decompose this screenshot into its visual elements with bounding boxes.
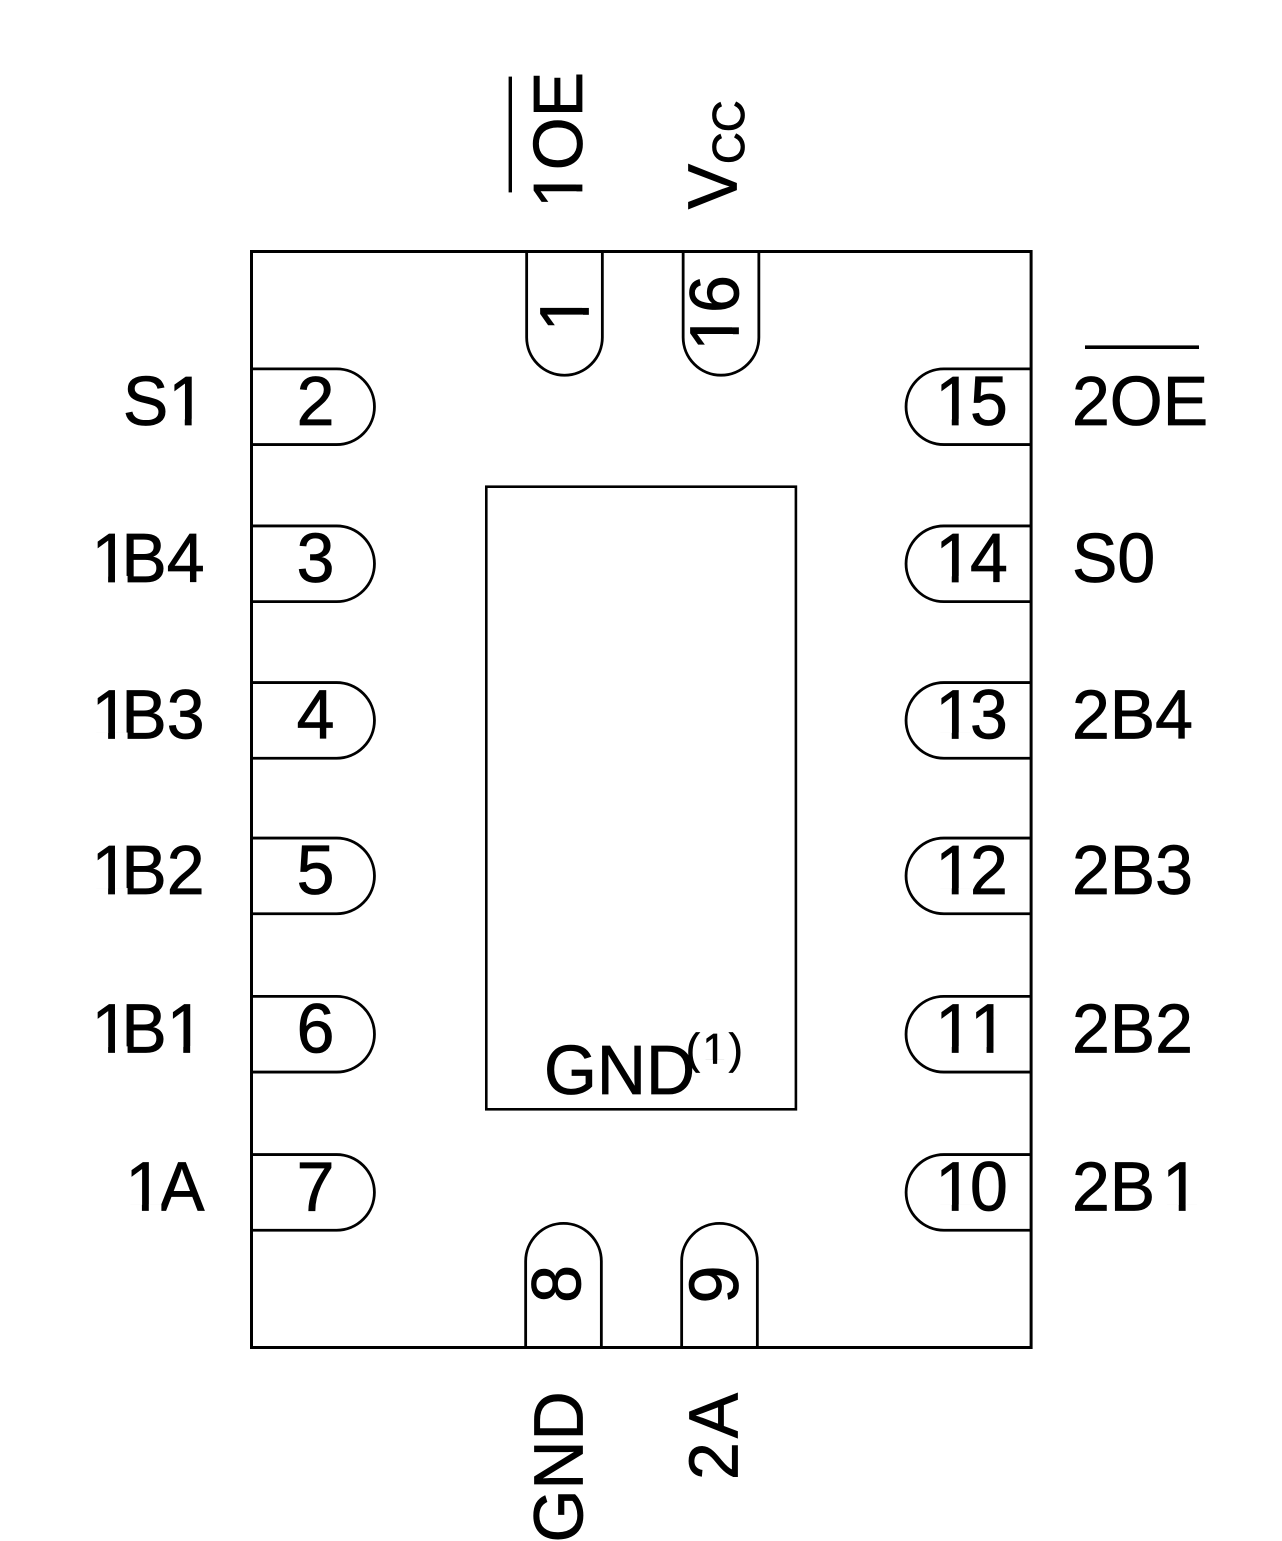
svg-text:2B3: 2B3 [1072, 831, 1193, 909]
svg-text:13: 13 [935, 676, 1008, 754]
svg-text:2: 2 [297, 362, 335, 440]
svg-text:11: 11 [935, 990, 1008, 1068]
svg-text:2A: 2A [675, 1393, 753, 1480]
svg-text:S1: S1 [123, 362, 206, 440]
svg-text:1B4: 1B4 [92, 519, 205, 597]
svg-text:9: 9 [675, 1266, 753, 1304]
svg-text:8: 8 [518, 1265, 596, 1303]
svg-text:GND: GND [544, 1031, 695, 1109]
svg-text:S0: S0 [1072, 519, 1155, 597]
svg-text:6: 6 [297, 990, 335, 1068]
svg-text:15: 15 [935, 362, 1008, 440]
svg-text:7: 7 [297, 1148, 335, 1226]
svg-text:1B2: 1B2 [92, 831, 205, 909]
svg-text:3: 3 [297, 519, 335, 597]
svg-text:1A: 1A [125, 1148, 204, 1226]
svg-text:2B4: 2B4 [1072, 676, 1193, 754]
svg-text:2B1: 2B1 [1072, 1148, 1200, 1226]
svg-text:14: 14 [935, 519, 1008, 597]
svg-text:2OE: 2OE [1072, 362, 1208, 440]
svg-text:1OE: 1OE [519, 72, 597, 208]
svg-text:16: 16 [676, 275, 754, 351]
svg-text:1: 1 [526, 294, 604, 332]
svg-text:(1): (1) [686, 1025, 743, 1073]
svg-text:10: 10 [935, 1148, 1008, 1226]
svg-text:5: 5 [297, 831, 335, 909]
svg-text:GND: GND [520, 1391, 598, 1541]
svg-text:4: 4 [297, 676, 335, 754]
svg-text:12: 12 [935, 831, 1008, 909]
svg-text:1B1: 1B1 [92, 990, 205, 1068]
svg-text:2B2: 2B2 [1072, 990, 1193, 1068]
svg-text:1B3: 1B3 [92, 676, 205, 754]
